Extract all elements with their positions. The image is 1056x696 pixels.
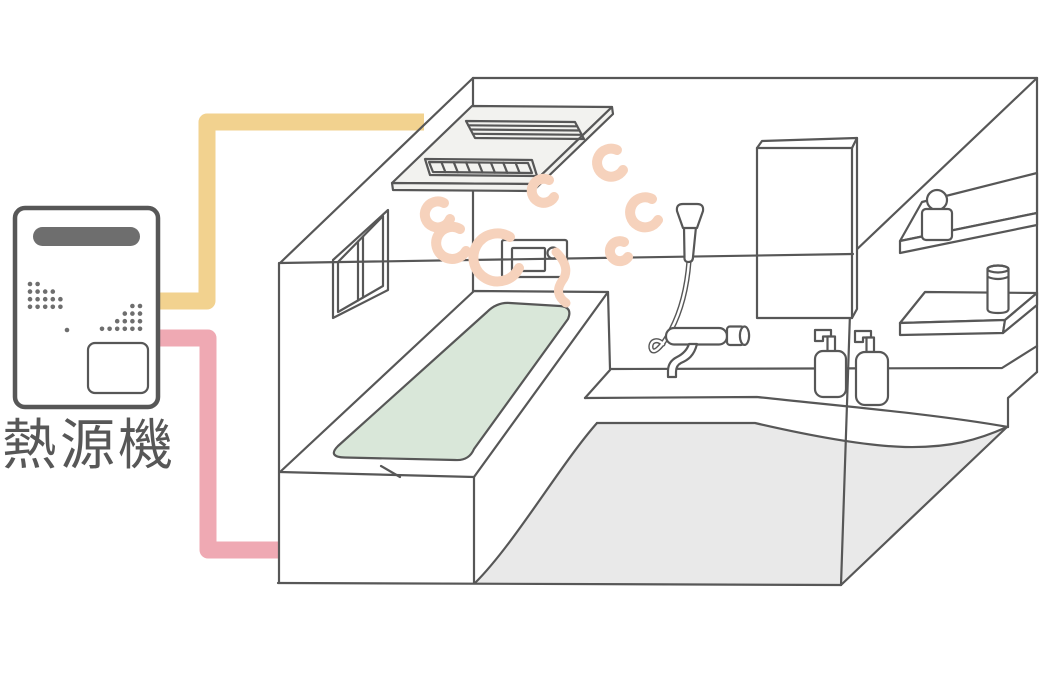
toiletry-jar [922,190,952,240]
cup [988,266,1009,314]
shower-head [677,204,703,228]
heat-source-vent [33,227,140,246]
faucet-end-cap [740,327,749,345]
mirror [757,138,857,318]
faucet-bar [666,328,727,345]
heat-source-label: 熱源機 [2,413,176,477]
bath-heating-system-diagram: 熱源機 [0,0,1056,696]
heat-source-unit [15,208,158,407]
